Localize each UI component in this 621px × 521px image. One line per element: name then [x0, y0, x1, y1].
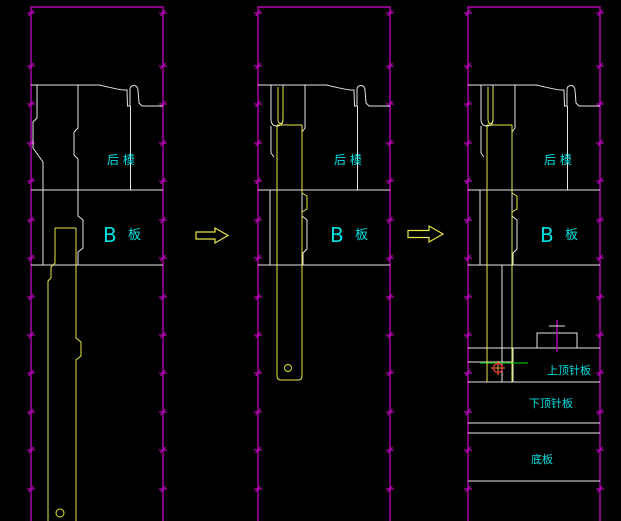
- pin-bore-line: [302, 85, 307, 265]
- panel-mold-stage-2: 后 模 B 板: [254, 7, 394, 521]
- cad-drawing-canvas[interactable]: 后 模 B 板 后 模 B 板: [0, 0, 621, 521]
- upper-ejector-plate-label: 上顶针板: [547, 363, 591, 377]
- b-plate-label: 板: [128, 228, 141, 243]
- panel-mold-stage-3: 后 模 B 板 上顶针板 下顶针板 底板: [464, 7, 604, 521]
- b-plate-label: 板: [355, 228, 368, 243]
- bottom-plate-label: 底板: [531, 452, 553, 466]
- core-step-line-left: [481, 126, 484, 157]
- rear-mold-label: 后 模: [334, 153, 362, 167]
- cavity-top-profile: [31, 85, 163, 106]
- pin-tip: [278, 87, 283, 124]
- pin-bore-line: [512, 85, 517, 265]
- b-plate-label: 板: [565, 228, 578, 243]
- pin-hole-circle: [285, 365, 292, 372]
- section-border: [258, 7, 390, 521]
- right-arrow-icon: [408, 226, 443, 242]
- section-border-tick-marks: [254, 10, 394, 492]
- rear-mold-label: 后 模: [544, 153, 572, 167]
- b-plate-letter: B: [540, 223, 554, 247]
- pin-bore-line: [74, 85, 83, 265]
- pin-hole-circle: [56, 509, 64, 517]
- lower-ejector-plate-label: 下顶针板: [529, 396, 573, 410]
- pin-pocket-outline: [481, 85, 493, 126]
- pin-pocket-outline: [271, 85, 283, 126]
- ejector-pin-raised: [277, 87, 307, 380]
- rear-mold-label: 后 模: [107, 153, 135, 167]
- section-border: [468, 7, 600, 521]
- right-arrow-icon: [196, 228, 228, 243]
- b-plate-letter: B: [330, 223, 344, 247]
- pin-tip: [488, 87, 493, 124]
- cad-drawing-viewport[interactable]: 后 模 B 板 后 模 B 板: [0, 0, 621, 521]
- section-border-tick-marks: [464, 10, 604, 492]
- core-step-line-left: [271, 126, 274, 157]
- core-step-line-left: [33, 85, 43, 265]
- section-border: [31, 7, 163, 521]
- ejector-pin-retracted: [48, 228, 81, 521]
- panel-mold-stage-1: 后 模 B 板: [27, 7, 167, 521]
- b-plate-letter: B: [103, 223, 117, 247]
